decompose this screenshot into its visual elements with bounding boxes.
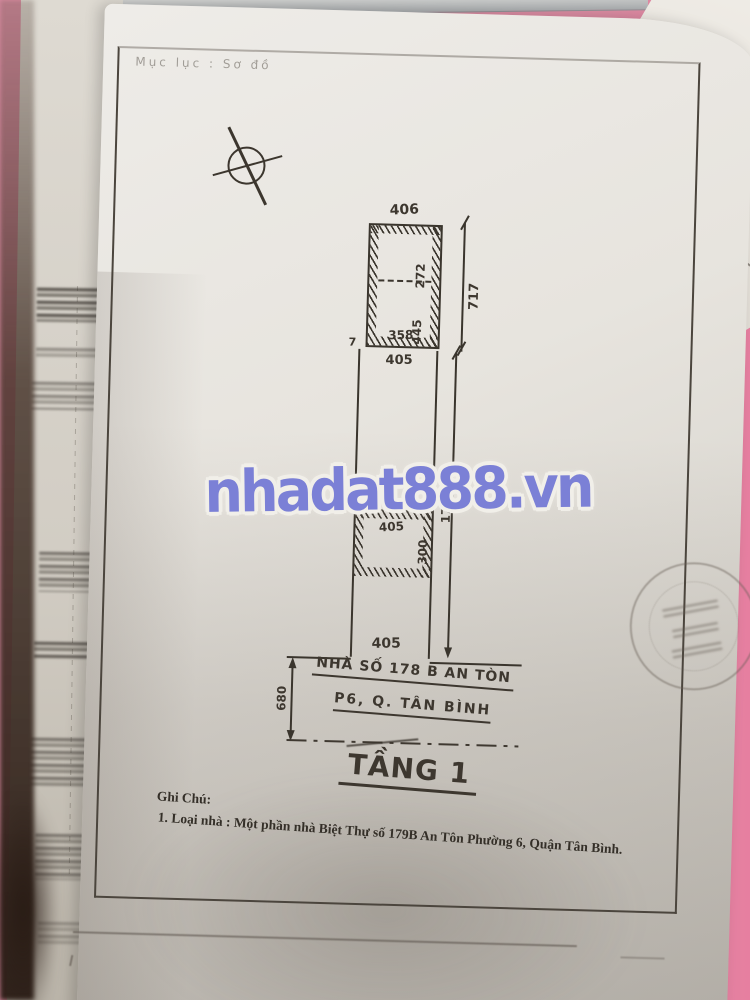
dimension-block-depth: 717 — [467, 283, 483, 311]
dimension-lower-block-depth: 300 — [415, 539, 430, 564]
wall-hatch-left — [368, 225, 379, 345]
dimension-top-width: 406 — [373, 201, 436, 220]
dimension-wall: 7 — [348, 336, 356, 349]
wall-hatch-right — [429, 227, 440, 347]
pencil-mark — [69, 955, 73, 966]
dimension-inner-width: 358 — [372, 327, 430, 342]
stamp-illegible-text — [672, 642, 723, 660]
dimension-arrow-down — [444, 647, 452, 658]
stamp-illegible-text — [662, 600, 719, 622]
stamp-illegible-text — [672, 622, 719, 640]
dimension-arrow-up — [288, 657, 296, 668]
dimension-room-a-depth: 272 — [413, 263, 428, 288]
dimension-road-width: 680 — [274, 686, 289, 711]
site-watermark: nhadat888.vn — [204, 453, 592, 526]
wall-hatch-top — [371, 225, 441, 235]
notes-label: Ghi Chú: — [156, 788, 211, 807]
dimension-bottom-width: 405 — [355, 635, 417, 651]
photo-of-floor-plan-document: Ngày th hàn Mục lục : Sơ đồ 406 — [0, 0, 750, 1000]
dimension-mid-width: 405 — [369, 353, 429, 368]
photo-corner-shadow — [0, 790, 58, 1000]
